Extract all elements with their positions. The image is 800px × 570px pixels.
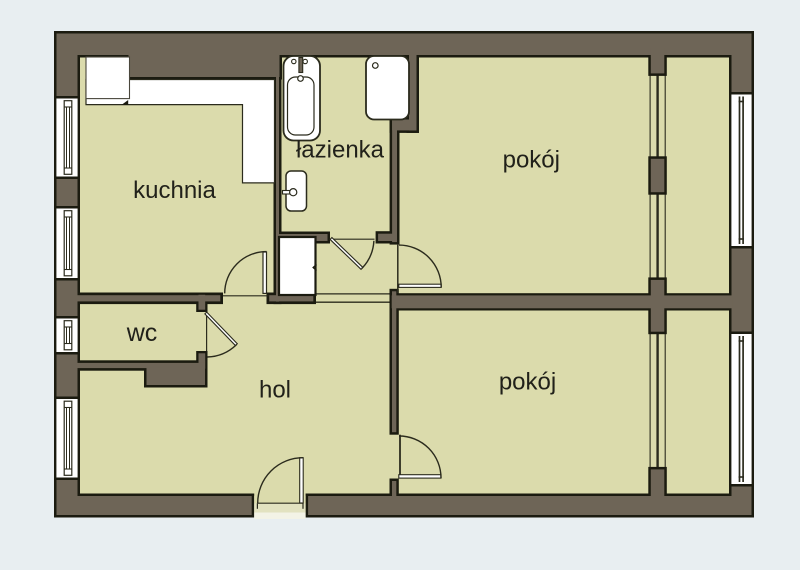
svg-text:pokój: pokój xyxy=(499,369,556,396)
svg-text:wc: wc xyxy=(126,319,158,347)
svg-text:kuchnia: kuchnia xyxy=(133,177,216,204)
svg-text:pokój: pokój xyxy=(503,147,560,174)
svg-text:łazienka: łazienka xyxy=(296,137,385,164)
svg-text:hol: hol xyxy=(259,377,291,404)
